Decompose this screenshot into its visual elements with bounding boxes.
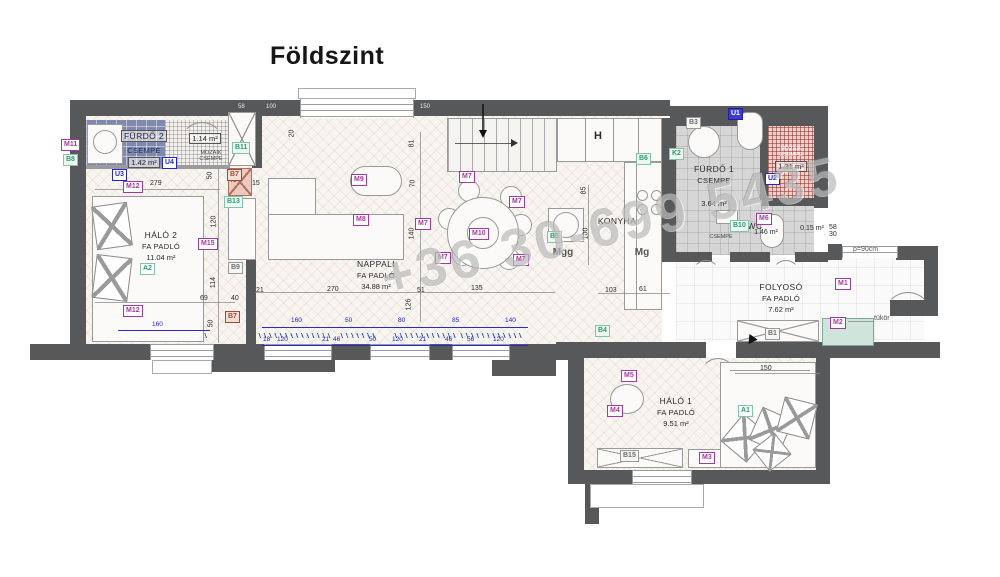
wc-area: 1.46 m²: [748, 229, 784, 236]
room-label-kitchen: KONYHA: [592, 216, 642, 226]
plan-shape: [298, 88, 416, 99]
plan-shape: [568, 358, 584, 470]
room-label-bathroom1: FÜRDŐ 1 CSEMPE 3.64 m²: [686, 164, 742, 208]
marker-m4: M4: [607, 405, 623, 417]
window-dimension-label: 46: [333, 336, 340, 343]
marker-m7: M7: [509, 196, 525, 208]
marker-b11: B11: [232, 142, 250, 154]
room-area: 3.64 m²: [686, 199, 742, 208]
plan-shape: [262, 345, 528, 346]
dimension-label: 15: [252, 180, 260, 187]
plan-shape: [590, 484, 704, 508]
room-area: 1.42 m²: [128, 157, 159, 168]
marker-m12: M12: [123, 305, 143, 317]
dimension-label: 114: [210, 277, 217, 288]
mosaic-finish-note: MOZAIK CSEMPE: [193, 150, 229, 162]
room-name: FÜRDŐ 2: [121, 130, 167, 142]
window-dimension-label: 120: [493, 336, 504, 343]
dimension-label: 85: [580, 187, 587, 195]
marker-m7: M7: [435, 252, 451, 264]
marker-b10: B10: [730, 220, 749, 232]
marker-m3: M3: [699, 452, 715, 464]
room-label-bedroom2: HÁLÓ 2 FA PADLÓ 11.04 m²: [130, 230, 192, 262]
marker-b4: B4: [595, 325, 610, 337]
marker-b5: B5: [547, 231, 562, 243]
plan-shape: [588, 185, 589, 265]
room-name: NAPPALI: [343, 259, 409, 269]
dimension-label: 279: [150, 180, 162, 187]
window-dimension-label: 140: [505, 317, 516, 324]
window-dimension-label: 85: [452, 317, 459, 324]
marker-m7: M7: [415, 218, 431, 230]
bathroom1-sink: [688, 126, 720, 158]
dimension-label: 103: [605, 287, 617, 294]
plan-shape: [662, 118, 676, 260]
plan-shape: [896, 246, 938, 260]
plan-shape: [330, 344, 370, 360]
plan-shape: [255, 292, 555, 293]
plan-shape: [556, 342, 706, 358]
dimension-label: 100: [582, 228, 589, 240]
plan-shape: [300, 98, 414, 118]
marker-b13: B13: [224, 196, 243, 208]
marker-u2: U2: [765, 173, 780, 185]
niche-volume: 0.15 m²: [792, 225, 832, 232]
window-dimension-label: 160: [152, 321, 163, 328]
marker-m15: M15: [198, 238, 218, 250]
dimension-label: 50: [206, 172, 213, 180]
plan-shape: [95, 302, 235, 303]
fridge-label: H: [588, 130, 608, 142]
plan-shape: [205, 358, 335, 372]
marker-a1: A1: [738, 405, 753, 417]
marker-b3: B3: [686, 117, 701, 129]
dimension-label: 70: [409, 180, 416, 188]
window-dimension-label: 50: [369, 336, 376, 343]
plan-shape: [848, 321, 874, 322]
marker-b6: B6: [636, 153, 651, 165]
room-area: 9.51 m²: [645, 419, 707, 428]
room-label-livingroom: NAPPALI FA PADLÓ 34.88 m²: [343, 259, 409, 291]
marker-m11: M11: [61, 139, 80, 151]
plan-shape: [585, 118, 586, 162]
marker-m6: M6: [756, 213, 772, 225]
plan-shape: [636, 162, 637, 310]
marker-m1: M1: [835, 278, 851, 290]
plan-shape: [455, 143, 513, 144]
plan-shape: [632, 470, 692, 484]
plan-shape: [613, 118, 614, 162]
window-dimension-label: 21: [322, 336, 329, 343]
room-name: KONYHA: [592, 216, 642, 226]
room-label-hallway: FOLYOSÓ FA PADLÓ 7.62 m²: [752, 282, 810, 314]
plan-shape: [370, 344, 430, 360]
window-dimension-label: 18: [263, 336, 270, 343]
window-dimension-label: 21: [419, 336, 426, 343]
window-dimension-label: 80: [398, 317, 405, 324]
marker-m7: M7: [459, 171, 475, 183]
dimension-label: 21: [256, 287, 264, 294]
mosaic-area-bathroom1: 1.31 m²: [768, 156, 814, 174]
dishwasher-label: Mgg: [548, 247, 578, 258]
wall-dimension-text: 150: [420, 104, 430, 110]
marker-m5: M5: [621, 370, 637, 382]
plan-shape: [816, 358, 830, 484]
room-finish: CSEMPE: [112, 146, 176, 155]
appliance-label: Mg: [630, 247, 654, 258]
dimension-label: 150: [760, 365, 772, 372]
plan-shape: [95, 189, 220, 190]
marker-u4: U4: [162, 157, 177, 169]
window-dimension-label: 46: [445, 336, 452, 343]
marker-u3: U3: [112, 169, 127, 181]
plan-shape: [452, 344, 510, 360]
plan-shape: [70, 100, 86, 350]
plan-shape: [795, 252, 828, 262]
sofa-section: [268, 214, 404, 260]
dimension-label: 270: [327, 286, 339, 293]
marker-b9: B9: [228, 262, 243, 274]
plan-shape: [730, 252, 770, 262]
plan-shape: [246, 260, 256, 344]
dimension-label: 20: [288, 130, 295, 138]
pillow: [91, 202, 133, 251]
plan-shape: [218, 168, 219, 343]
marker-b7: B7: [227, 169, 242, 181]
parapet-label: p=90cm: [853, 246, 878, 253]
plan-shape: [568, 470, 632, 484]
room-label-bedroom1: HÁLÓ 1 FA PADLÓ 9.51 m²: [645, 396, 707, 428]
door-arc-bathroom1: [692, 260, 720, 288]
stack-dim-bottom: 30: [829, 231, 837, 238]
plan-shape: [482, 104, 484, 132]
marker-k2: K2: [669, 148, 684, 160]
room-name: HÁLÓ 1: [645, 396, 707, 406]
dimension-label: 120: [210, 216, 217, 228]
dimension-label: 50: [207, 320, 214, 328]
floor-bathroom1-leg: [676, 200, 728, 255]
mosaic-area: 1.14 m²: [189, 133, 220, 144]
cooktop-burner: [651, 204, 662, 215]
mirror-label: tükör: [874, 315, 890, 322]
plan-shape: [152, 360, 212, 374]
closet-b11: [228, 112, 256, 166]
room-name: HÁLÓ 2: [130, 230, 192, 240]
marker-u1: U1: [728, 108, 743, 120]
window-dimension-label: 120: [277, 336, 288, 343]
room-finish: FA PADLÓ: [343, 271, 409, 280]
window-dimension-label: 50: [345, 317, 352, 324]
window-dimension-label: 160: [291, 317, 302, 324]
marker-b15: B15: [620, 450, 639, 462]
entrance-door-arc: [884, 292, 932, 340]
room-finish: FA PADLÓ: [752, 294, 810, 303]
floor-plan: Földszint 58100400150: [0, 0, 1000, 577]
window-dimension-label: 56: [467, 336, 474, 343]
entry-arrow: [479, 130, 487, 138]
plan-shape: [735, 373, 820, 374]
plan-shape: [762, 198, 828, 206]
room-area: 11.04 m²: [130, 253, 192, 262]
room-label-bathroom2-mosaic: 1.14 m²: [182, 128, 228, 146]
cooktop-burner: [651, 190, 662, 201]
dimension-label: 135: [471, 285, 483, 292]
dimension-label: 81: [408, 140, 415, 148]
marker-m12: M12: [123, 181, 143, 193]
marker-m2: M2: [830, 317, 846, 329]
dimension-label: 40: [231, 295, 239, 302]
cooktop-burner: [637, 204, 648, 215]
room-name: FÜRDŐ 1: [686, 164, 742, 174]
marker-m9: M9: [351, 174, 367, 186]
room-area: 34.88 m²: [343, 282, 409, 291]
window-dimension-label: 120: [392, 336, 403, 343]
staircase: [447, 118, 557, 172]
marker-b7: B7: [225, 311, 240, 323]
plan-shape: [30, 344, 150, 360]
marker-b1: B1: [765, 328, 780, 340]
bench-b15: [597, 448, 683, 468]
mosaic-area: 1.31 m²: [775, 161, 806, 172]
room-area: 7.62 m²: [752, 305, 810, 314]
page-title: Földszint: [270, 42, 384, 71]
cooktop-burner: [637, 190, 648, 201]
plan-shape: [150, 344, 214, 360]
wall-dimension-text: 58: [238, 104, 245, 110]
room-finish: FA PADLÓ: [130, 242, 192, 251]
stack-dim-top: 58: [829, 224, 837, 231]
plan-shape: [118, 330, 210, 331]
plan-shape: [828, 244, 842, 260]
marker-m7: M7: [513, 254, 529, 266]
marker-a2: A2: [140, 263, 155, 275]
wc-finish: CSEMPE: [706, 234, 736, 240]
stairs-direction-arrow: [511, 139, 518, 147]
room-finish: CSEMPE: [686, 176, 742, 185]
room-name: FOLYOSÓ: [752, 282, 810, 292]
dimension-label: 51: [417, 287, 425, 294]
marker-b8: B8: [63, 154, 78, 166]
pillow: [91, 254, 132, 302]
plan-shape: [690, 470, 830, 484]
plan-shape: [264, 344, 332, 360]
plan-shape: [814, 120, 828, 208]
wall-dimension-text: 100: [266, 104, 276, 110]
room-finish: FA PADLÓ: [645, 408, 707, 417]
plan-shape: [262, 327, 528, 328]
dimension-label: 61: [639, 286, 647, 293]
dimension-label: 126: [405, 299, 412, 311]
dimension-label: 69: [200, 295, 208, 302]
plan-shape: [428, 344, 452, 360]
marker-m10: M10: [469, 228, 489, 240]
marker-m8: M8: [353, 214, 369, 226]
